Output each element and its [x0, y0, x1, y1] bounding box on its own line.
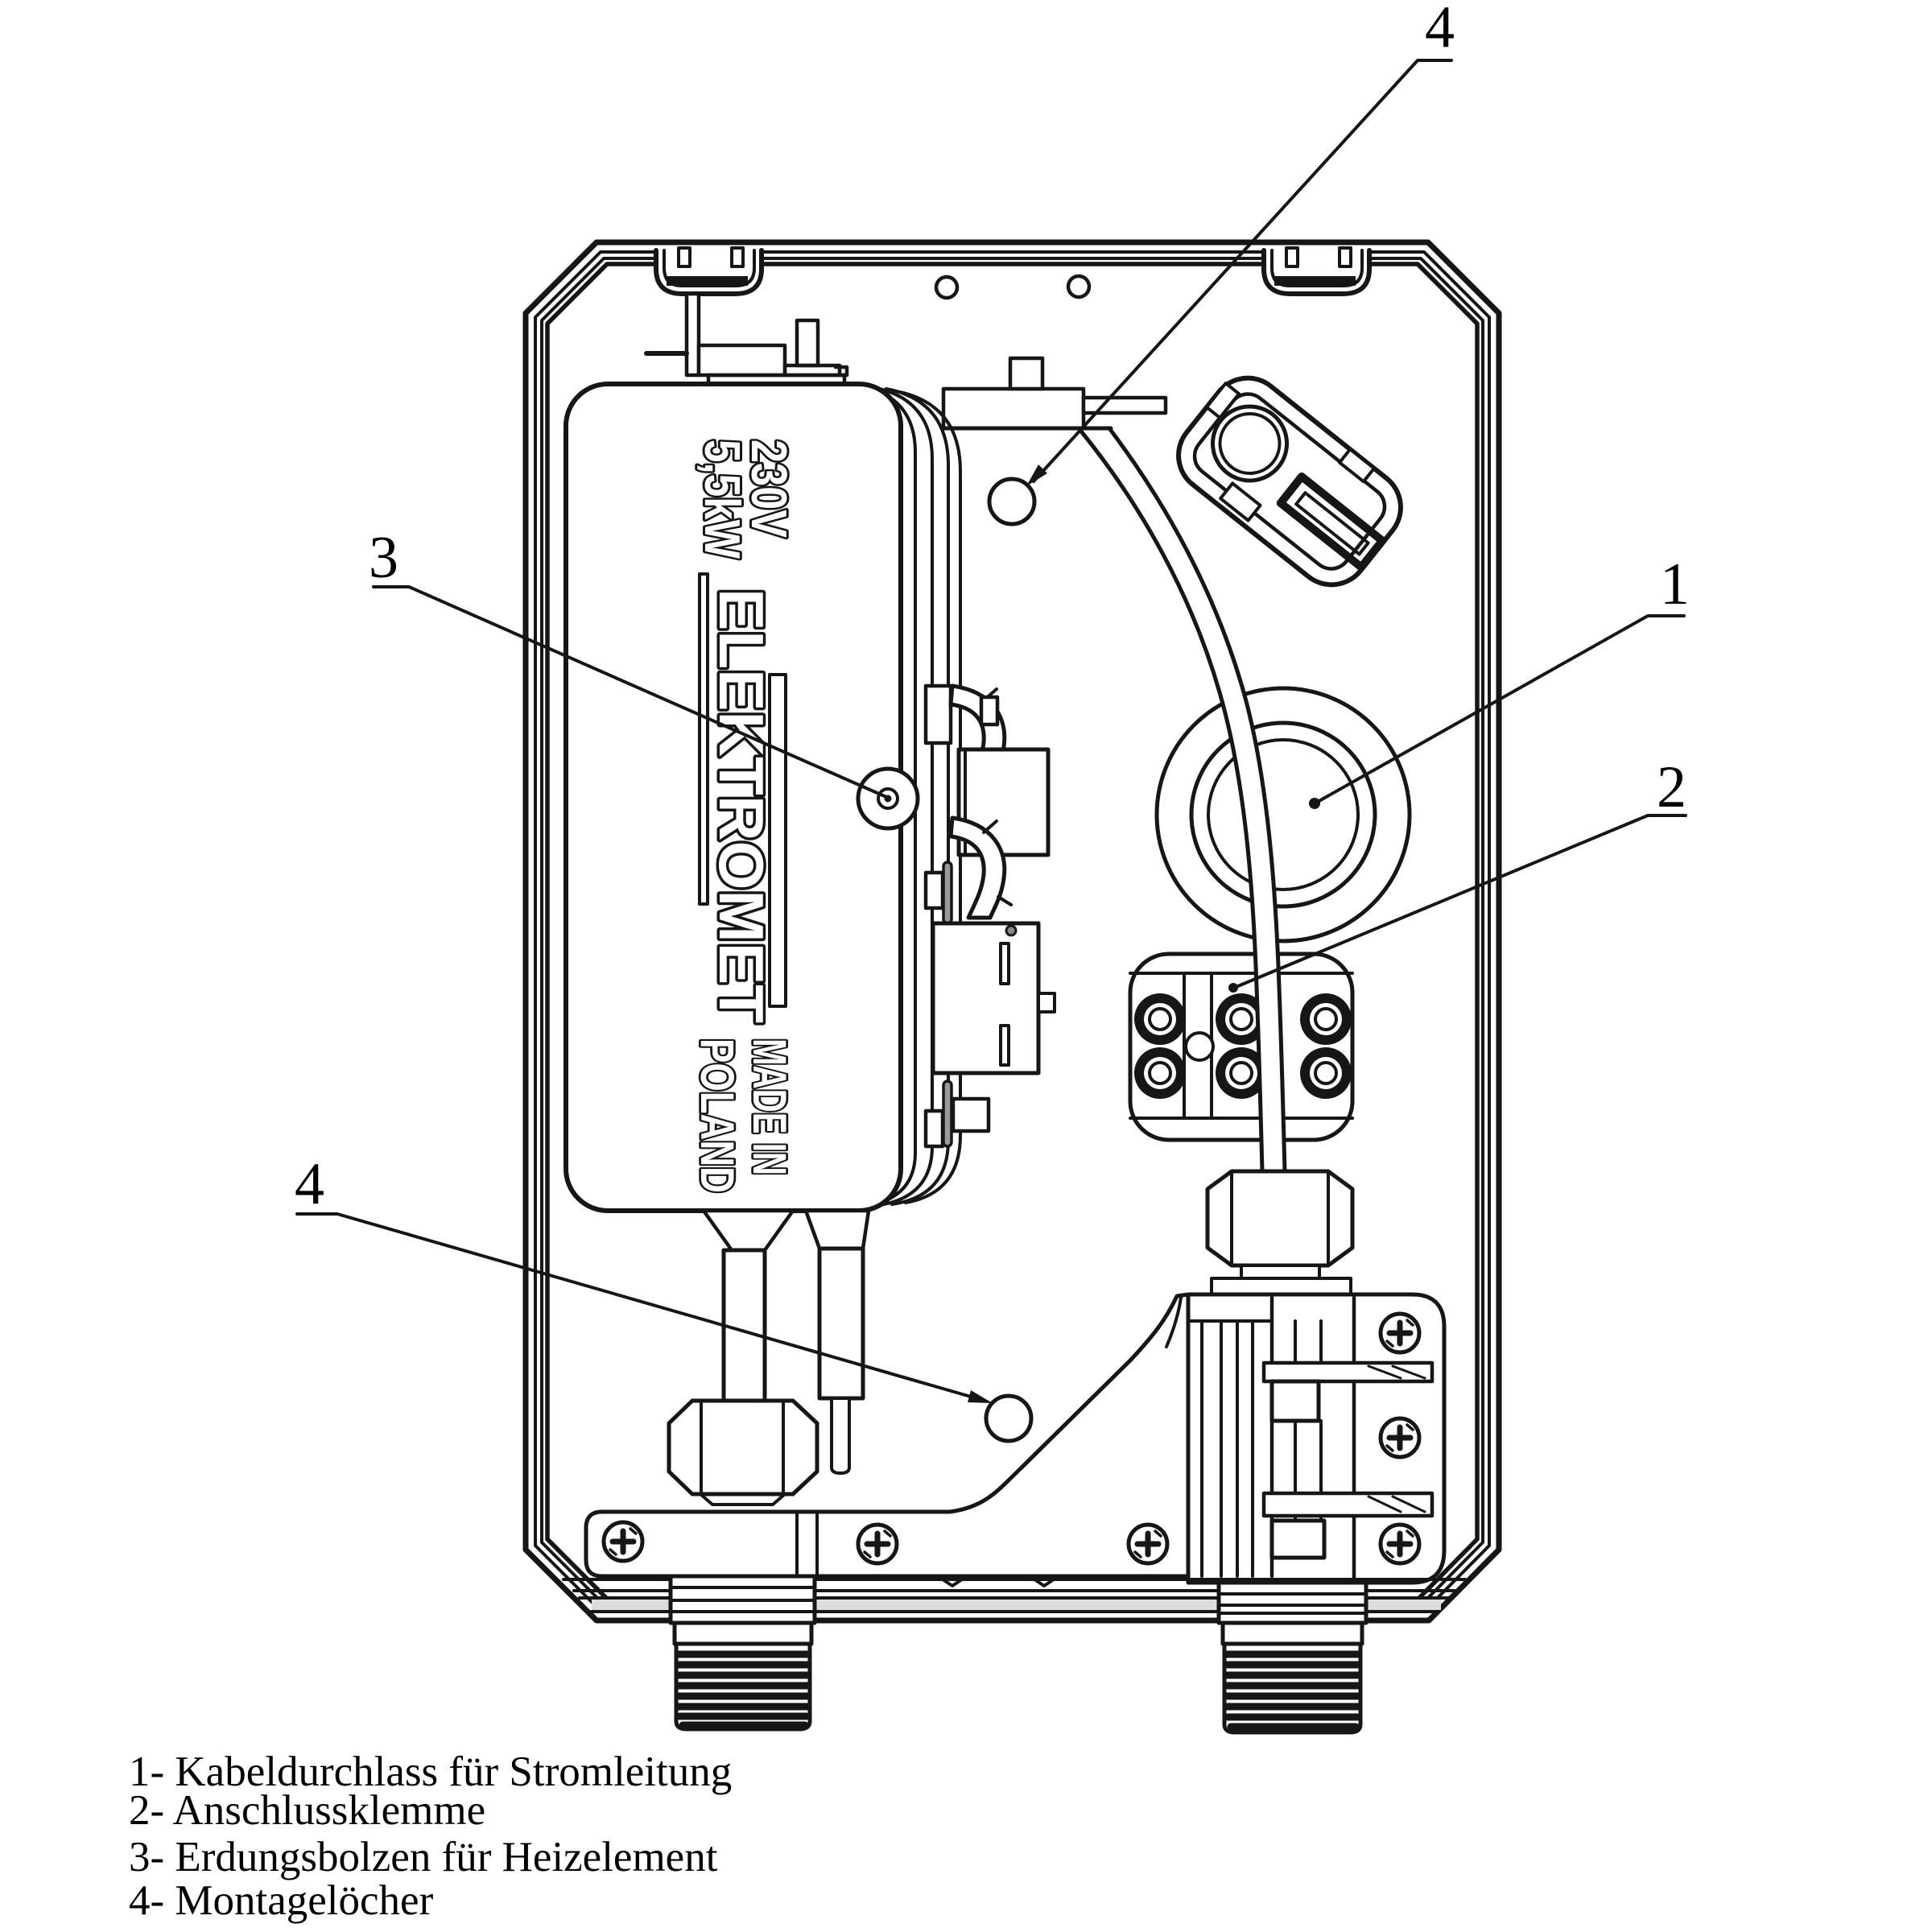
svg-text:2- Anschlussklemme: 2- Anschlussklemme [129, 1787, 485, 1834]
svg-text:4: 4 [295, 1151, 324, 1217]
svg-text:5,5kW: 5,5kW [694, 440, 749, 559]
svg-text:2: 2 [1657, 754, 1686, 820]
svg-text:ELEKTROMET: ELEKTROMET [706, 588, 777, 1023]
svg-text:3- Erdungsbolzen für Heizeleme: 3- Erdungsbolzen für Heizelement [129, 1834, 718, 1880]
svg-text:1: 1 [1660, 551, 1690, 617]
svg-text:4: 4 [1425, 0, 1455, 60]
svg-text:4- Montagelöcher: 4- Montagelöcher [129, 1877, 434, 1924]
svg-text:MADE IN: MADE IN [743, 1038, 795, 1175]
svg-text:POLAND: POLAND [691, 1038, 743, 1193]
svg-text:3: 3 [369, 525, 398, 591]
